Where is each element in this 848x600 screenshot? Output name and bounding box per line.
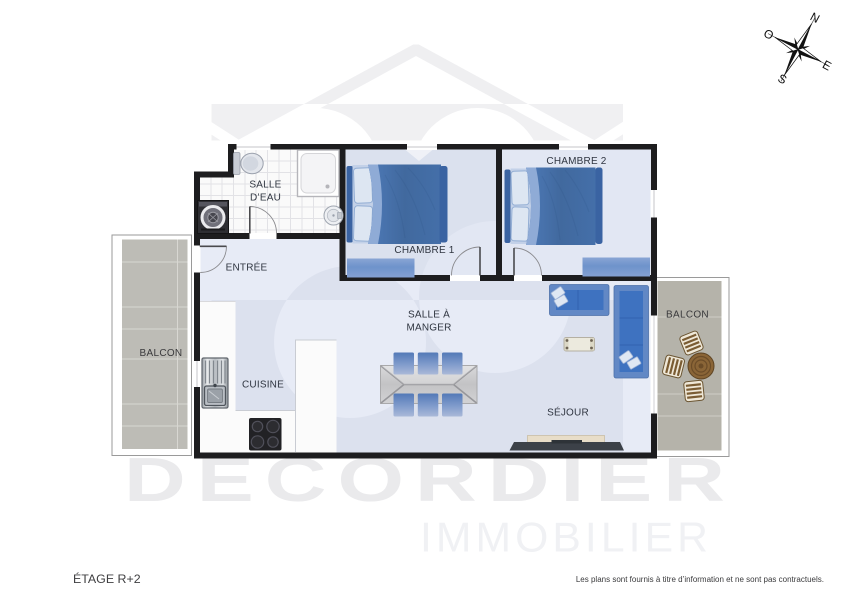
svg-text:ÉTAGE R+2: ÉTAGE R+2 — [73, 571, 141, 586]
svg-text:IMMOBILIER: IMMOBILIER — [420, 514, 712, 561]
svg-text:MANGER: MANGER — [406, 323, 451, 334]
svg-text:BALCON: BALCON — [666, 310, 709, 321]
svg-text:CHAMBRE 1: CHAMBRE 1 — [394, 245, 454, 256]
svg-text:Les plans sont fournis à titre: Les plans sont fournis à titre d’informa… — [576, 575, 824, 584]
svg-text:ENTRÉE: ENTRÉE — [226, 261, 268, 274]
svg-text:BALCON: BALCON — [140, 348, 183, 359]
svg-text:CUISINE: CUISINE — [242, 380, 284, 391]
svg-text:SALLE: SALLE — [249, 180, 281, 191]
svg-text:SALLE À: SALLE À — [408, 308, 450, 321]
svg-text:D’EAU: D’EAU — [250, 193, 281, 204]
svg-text:SÉJOUR: SÉJOUR — [547, 406, 589, 419]
svg-text:CHAMBRE 2: CHAMBRE 2 — [546, 156, 606, 167]
